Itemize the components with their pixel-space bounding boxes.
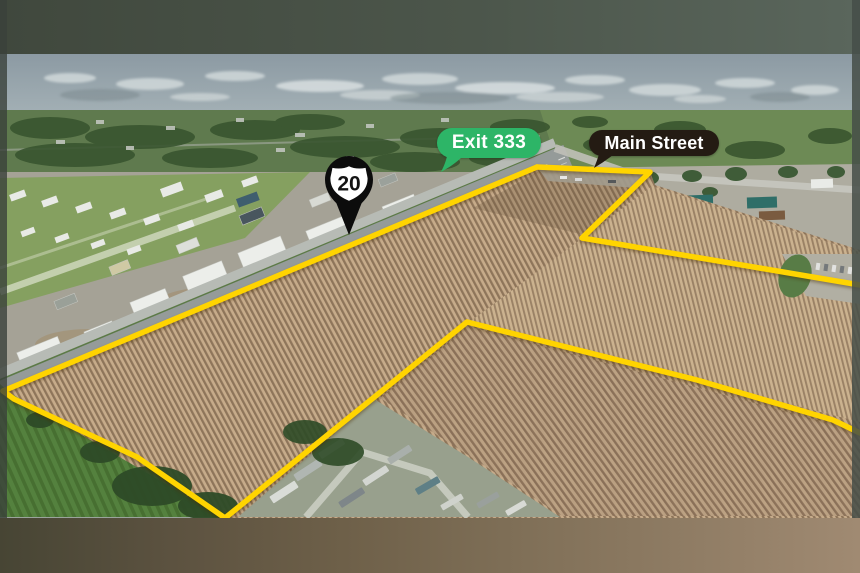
photo-right-edge bbox=[852, 0, 860, 518]
aerial-scene bbox=[0, 0, 860, 573]
photo-blur-bar bbox=[0, 518, 860, 573]
sky-band bbox=[0, 0, 860, 56]
city-skyline-band bbox=[0, 54, 860, 114]
exit-badge-label: Exit 333 bbox=[452, 132, 526, 154]
route-20-pin map-pin-icon: 20 bbox=[320, 154, 378, 238]
photo-left-edge bbox=[0, 0, 7, 518]
suburb-band bbox=[0, 110, 860, 172]
street-badge-label: Main Street bbox=[604, 133, 703, 154]
street-badge: Main Street bbox=[589, 130, 719, 156]
exit-badge: Exit 333 bbox=[437, 128, 541, 158]
aerial-property-photo: Exit 333 Main Street 20 bbox=[0, 0, 860, 573]
route-number: 20 bbox=[337, 173, 360, 196]
